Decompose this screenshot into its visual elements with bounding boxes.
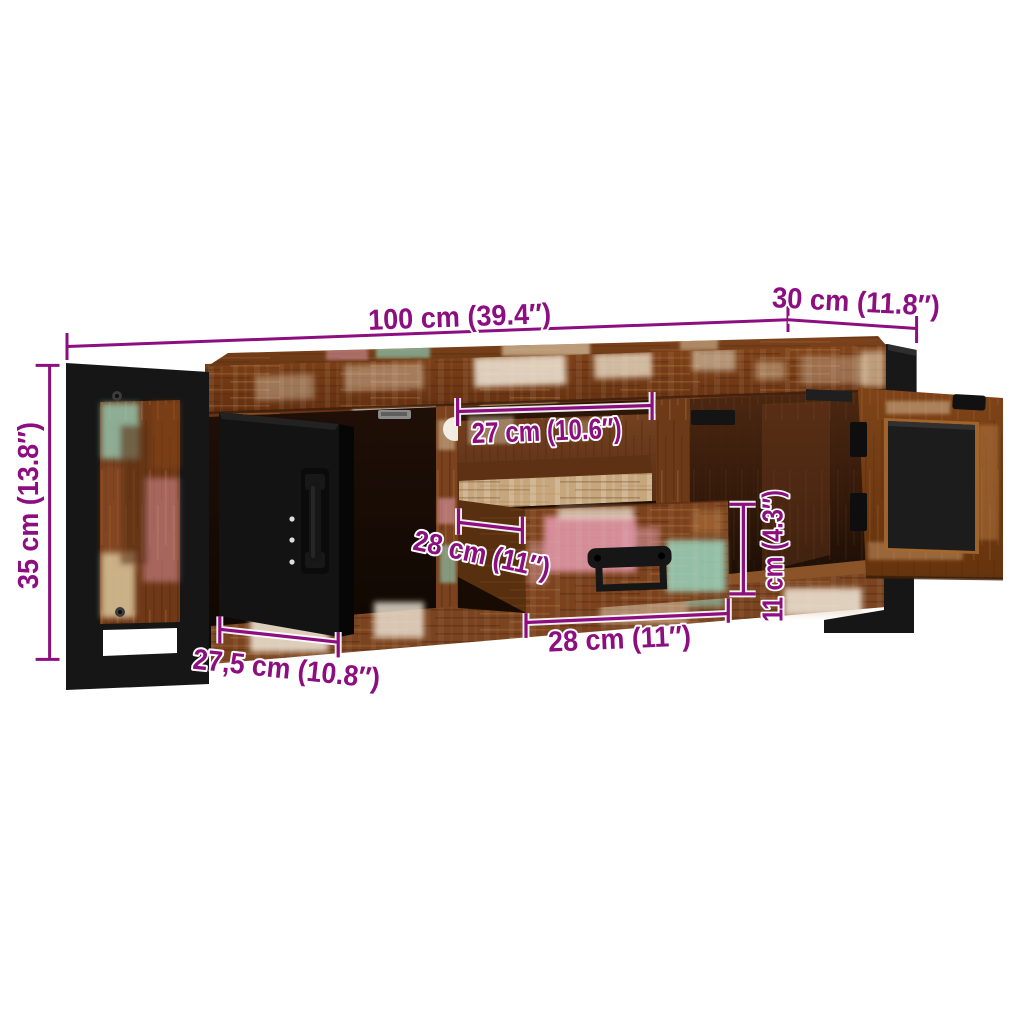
- svg-text:100 cm (39.4″): 100 cm (39.4″): [368, 298, 552, 337]
- svg-text:35 cm (13.8″): 35 cm (13.8″): [13, 422, 45, 589]
- svg-text:11 cm (4.3″): 11 cm (4.3″): [758, 490, 790, 622]
- svg-text:28 cm (11″): 28 cm (11″): [547, 620, 691, 658]
- svg-text:27 cm (10.6″): 27 cm (10.6″): [471, 413, 622, 450]
